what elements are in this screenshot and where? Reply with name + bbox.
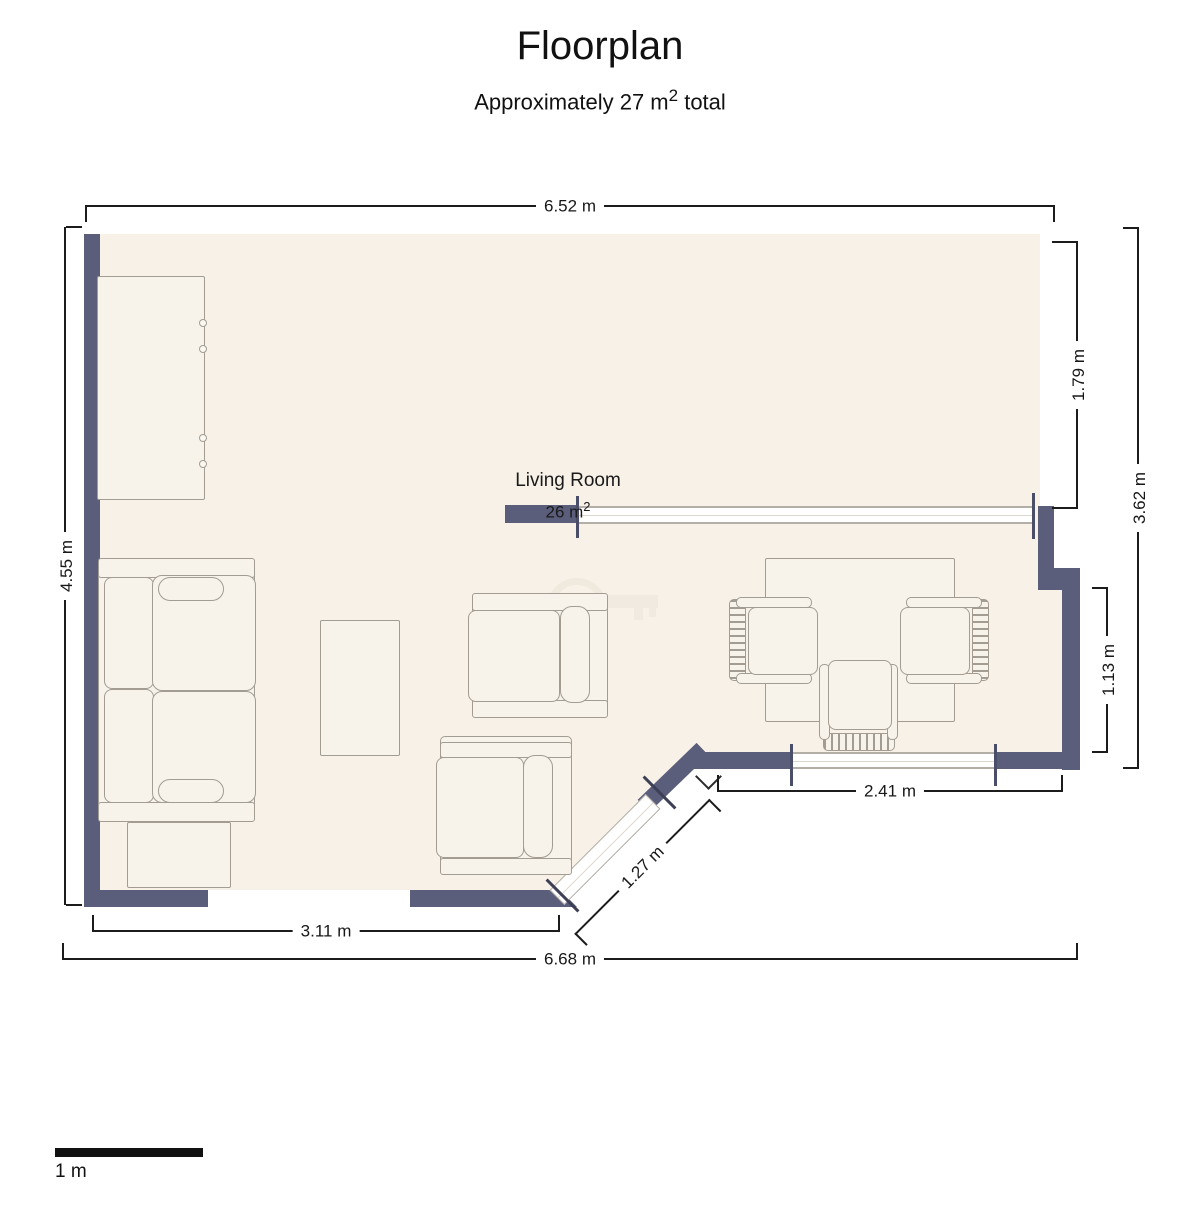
dimension-left-height: 4.55 m [64, 227, 66, 905]
wall-right-upper [1038, 506, 1054, 568]
window-bottom-left-tick [790, 744, 793, 786]
dining-chair-seat [828, 660, 892, 730]
sofa-pillow [158, 577, 224, 601]
dimension-top-width: 6.52 m [85, 205, 1055, 207]
armchair-backrest [560, 606, 590, 703]
armchair-armrest-top [472, 593, 608, 611]
cabinet [97, 276, 205, 500]
page-subtitle: Approximately 27 m2 total [0, 86, 1200, 115]
cabinet-knob [199, 434, 207, 442]
dining-chair-back [729, 599, 746, 681]
floorplan-page: Floorplan Approximately 27 m2 total [0, 0, 1200, 1211]
dining-chair-seat [900, 607, 970, 675]
dimension-left-height-label: 4.55 m [57, 532, 77, 600]
page-title: Floorplan [0, 24, 1200, 69]
dresser [127, 822, 231, 888]
cabinet-knob [199, 460, 207, 468]
armchair-armrest-bottom [472, 700, 608, 718]
scale-bar [55, 1148, 203, 1157]
window-bottom-right-tick [994, 744, 997, 786]
cabinet-knob [199, 345, 207, 353]
armchair-seat [436, 757, 524, 858]
armchair-armrest-top [440, 742, 572, 758]
sofa-backrest-cushion [104, 577, 154, 689]
armchair-seat [468, 610, 560, 702]
dimension-right-upper-segment-label: 1.79 m [1069, 341, 1089, 409]
window-top [578, 506, 1034, 524]
dimension-right-height-label: 3.62 m [1130, 464, 1150, 532]
dimension-right-lower-segment: 1.13 m [1106, 588, 1108, 752]
cabinet-knob [199, 319, 207, 327]
wall-right-lower [1062, 568, 1080, 770]
wall-right-step [1038, 568, 1080, 590]
room-area-label: 26 m2 [500, 499, 636, 523]
wall-bottom-left [84, 890, 208, 907]
coffee-table [320, 620, 400, 756]
scale-bar-label: 1 m [55, 1161, 87, 1183]
sofa-armrest-bottom [98, 802, 255, 822]
dining-chair-back [823, 733, 895, 751]
sofa-backrest-cushion [104, 689, 154, 803]
dimension-right-upper-segment: 1.79 m [1076, 242, 1078, 508]
dimension-bottom-left-wall-label: 3.11 m [293, 922, 360, 942]
room-name-label: Living Room [500, 470, 636, 492]
dimension-bottom-width-label: 6.68 m [536, 950, 604, 970]
sofa-pillow [158, 779, 224, 803]
dining-chair-back [972, 599, 989, 681]
dimension-right-height: 3.62 m [1137, 228, 1139, 768]
dimension-bottom-width: 6.68 m [62, 958, 1078, 960]
dimension-top-width-label: 6.52 m [536, 197, 604, 217]
armchair-armrest-bottom [440, 858, 572, 875]
dimension-bottom-left-wall: 3.11 m [92, 930, 560, 932]
dimension-bottom-right-wall-label: 2.41 m [856, 782, 924, 802]
window-top-right-tick [1032, 493, 1035, 539]
window-bottom [792, 752, 995, 769]
dining-chair-seat [748, 607, 818, 675]
dimension-bottom-right-wall: 2.41 m [717, 790, 1063, 792]
armchair-backrest [523, 755, 553, 858]
dimension-right-lower-segment-label: 1.13 m [1099, 636, 1119, 704]
